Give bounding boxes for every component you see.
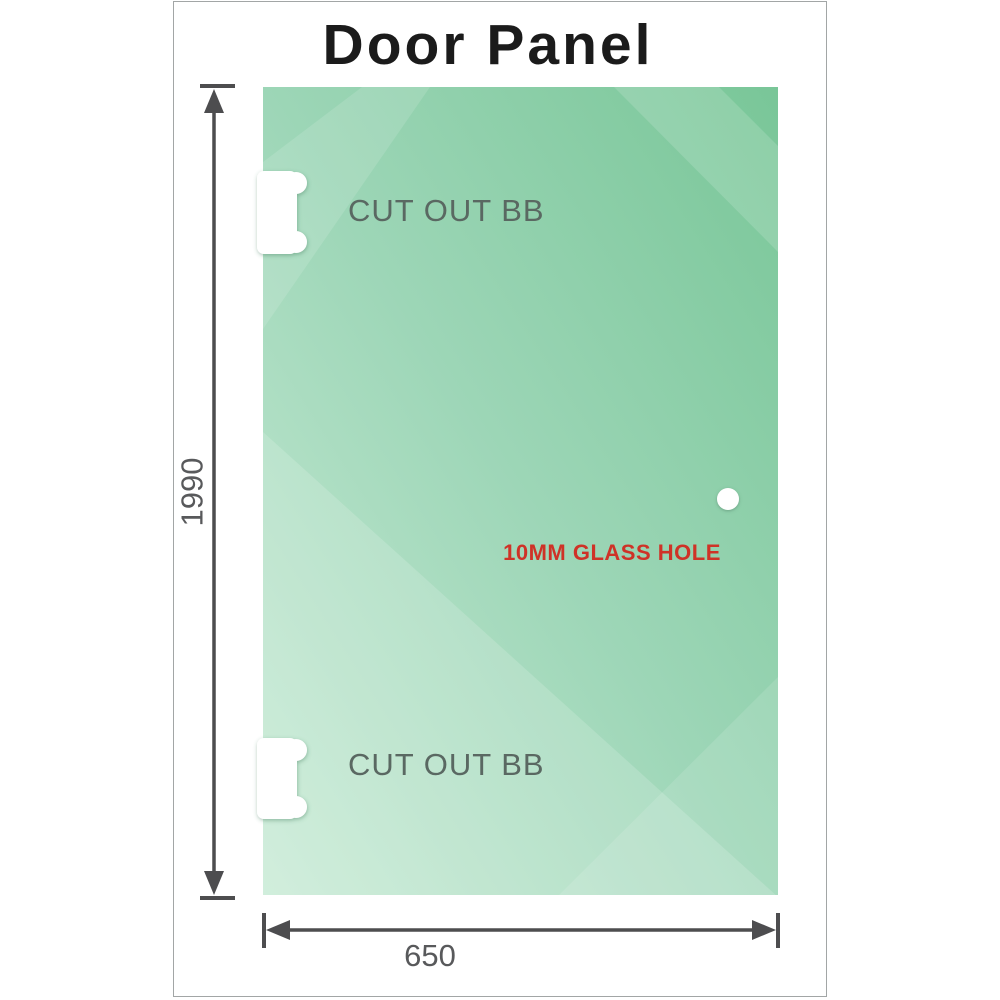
bottom-cutout-label: CUT OUT BB — [348, 747, 545, 782]
right-arrowhead-icon — [752, 920, 776, 940]
drawing-canvas: Door Panel CUT OUT BB — [173, 1, 827, 997]
left-arrowhead-icon — [266, 920, 290, 940]
door-panel-diagram: Door Panel CUT OUT BB — [174, 2, 826, 996]
up-arrowhead-icon — [204, 89, 224, 113]
diagram-stage: Door Panel CUT OUT BB — [0, 0, 1000, 1000]
top-cutout-label: CUT OUT BB — [348, 193, 545, 228]
cutout-relief-hole — [285, 172, 307, 194]
cutout-relief-hole — [285, 796, 307, 818]
width-dimension-value: 650 — [404, 938, 456, 973]
page-title: Door Panel — [323, 13, 654, 77]
cutout-relief-hole — [285, 739, 307, 761]
down-arrowhead-icon — [204, 871, 224, 895]
width-dimension: 650 — [264, 913, 778, 973]
height-dimension-value: 1990 — [175, 458, 210, 527]
glass-hole — [717, 488, 739, 510]
cutout-relief-hole — [285, 231, 307, 253]
glass-hole-label: 10MM GLASS HOLE — [503, 540, 721, 565]
height-dimension: 1990 — [175, 86, 236, 898]
